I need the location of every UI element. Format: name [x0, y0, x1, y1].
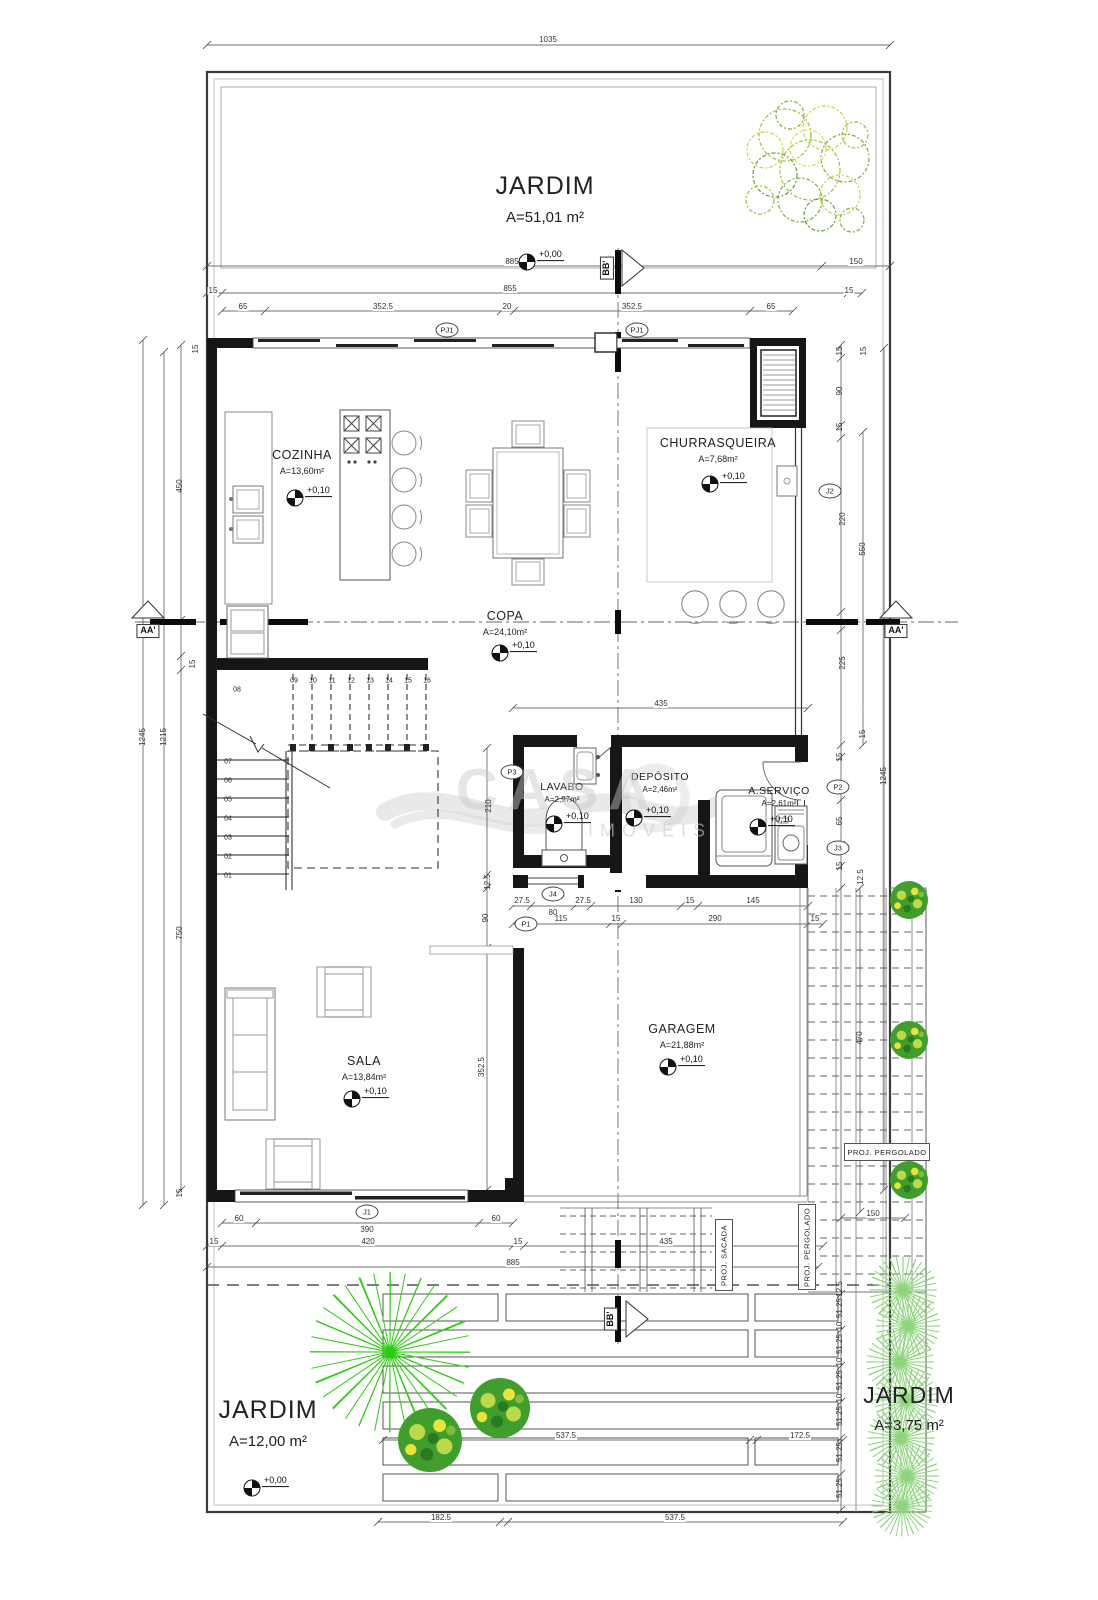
watermark-subtitle: IMÓVEIS: [588, 821, 712, 842]
garden-bottom-right-label: JARDIM A=3,75 m²: [863, 1382, 955, 1434]
level-marker-icon: [344, 1091, 361, 1108]
dimension-label: 90: [482, 913, 490, 924]
dimension-label: 15: [860, 346, 868, 357]
dimension-label: 51.25: [836, 1405, 844, 1427]
dimension-label: 15: [611, 915, 622, 923]
dimension-label: 1245: [880, 766, 888, 786]
garden-name: JARDIM: [218, 1396, 317, 1425]
level-marker-icon: [546, 816, 563, 833]
stair-step-number: 12: [346, 678, 356, 685]
garden-top-label: JARDIM A=51,01 m²: [495, 172, 594, 226]
opening-marker-p1: P1: [515, 917, 538, 932]
dimension-label: 65: [766, 303, 777, 311]
stair-step-number: 14: [384, 678, 394, 685]
dimension-label: 65: [238, 303, 249, 311]
level-marker-icon: [519, 254, 536, 271]
dimension-label: 537.5: [555, 1432, 577, 1440]
room-name: CHURRASQUEIRA: [660, 436, 776, 450]
room-label-copa: COPA A=24,10m²: [483, 609, 527, 637]
room-area: A=7,68m²: [660, 454, 776, 464]
dimension-label: 27.5: [574, 897, 592, 905]
level-value: +0,10: [720, 471, 747, 483]
section-marker: BB': [604, 1307, 618, 1330]
dimension-label: 220: [839, 511, 847, 526]
dimension-label: 145: [745, 897, 760, 905]
stair-step-number: 08: [232, 687, 242, 694]
garden-name: JARDIM: [863, 1382, 955, 1409]
floor-plan: JARDIM A=51,01 m² COZINHA A=13,60m² CHUR…: [0, 0, 1098, 1600]
level-value: +0,10: [768, 814, 795, 826]
stair-step-number: 07: [223, 759, 233, 766]
dimension-label: 885: [504, 258, 519, 266]
dimension-label: 15: [836, 752, 844, 763]
dimension-label: 537.5: [664, 1514, 686, 1522]
dimension-label: 15: [836, 346, 844, 357]
dimension-label: 150: [865, 1210, 880, 1218]
dimension-label: 51.25: [836, 1369, 844, 1391]
projection-text: PROJ. SACADA: [720, 1225, 729, 1286]
stair-step-number: 04: [223, 816, 233, 823]
level-value: +0,00: [537, 249, 564, 261]
stair-step-number: 05: [223, 797, 233, 804]
dimension-label: 15: [513, 1238, 524, 1246]
annotation-layer: JARDIM A=51,01 m² COZINHA A=13,60m² CHUR…: [0, 0, 1098, 1600]
dimension-label: 15: [685, 897, 696, 905]
level-marker-icon: [287, 490, 304, 507]
dimension-label: 51.25: [836, 1441, 844, 1463]
level-marker-icon: [626, 810, 643, 827]
dimension-label: 1035: [538, 36, 558, 44]
level-marker-icon: [244, 1480, 261, 1497]
room-area: A=13,84m²: [342, 1072, 386, 1082]
dimension-label: 172.5: [789, 1432, 811, 1440]
room-label-sala: SALA A=13,84m²: [342, 1054, 386, 1082]
dimension-label: 15: [836, 422, 844, 433]
room-name: A.SERVIÇO: [748, 785, 810, 797]
opening-marker-j4: J4: [542, 887, 565, 902]
dimension-label: 90: [836, 386, 844, 397]
level-value: +0,10: [644, 805, 671, 817]
projection-text: PROJ. PERGOLADO: [803, 1207, 812, 1286]
dimension-label: 12.5: [484, 873, 492, 891]
dimension-label: 750: [176, 925, 184, 940]
opening-marker-pj1: PJ1: [626, 323, 649, 338]
dimension-label: 420: [360, 1238, 375, 1246]
level-value: +0,10: [678, 1054, 705, 1066]
section-marker: AA': [136, 624, 159, 638]
dimension-label: 20: [502, 303, 513, 311]
dimension-label: 65: [836, 816, 844, 827]
dimension-label: 290: [707, 915, 722, 923]
stair-step-number: 06: [223, 778, 233, 785]
dimension-label: 15: [189, 659, 197, 670]
dimension-label: 15: [176, 1188, 184, 1199]
opening-marker-p3: P3: [501, 765, 524, 780]
stair-step-number: 01: [223, 873, 233, 880]
room-label-churrasqueira: CHURRASQUEIRA A=7,68m²: [660, 436, 776, 464]
dimension-label: 450: [176, 478, 184, 493]
projection-label-pergolado-vertical: PROJ. PERGOLADO: [798, 1204, 816, 1290]
level-value: +0,10: [305, 485, 332, 497]
dimension-label: 225: [839, 655, 847, 670]
dimension-label: 10: [836, 1393, 844, 1404]
dimension-label: 130: [628, 897, 643, 905]
garden-name: JARDIM: [495, 172, 594, 201]
dimension-label: 435: [658, 1238, 673, 1246]
room-name: COPA: [483, 609, 527, 623]
dimension-label: 15: [192, 344, 200, 355]
dimension-label: 885: [505, 1259, 520, 1267]
stair-step-number: 15: [403, 678, 413, 685]
dimension-label: 12.5: [836, 1280, 844, 1298]
room-area: A=24,10m²: [483, 627, 527, 637]
opening-marker-pj1: PJ1: [436, 323, 459, 338]
dimension-label: 10: [836, 1357, 844, 1368]
dimension-label: 352.5: [478, 1056, 486, 1078]
dimension-label: 15: [208, 287, 219, 295]
dimension-label: 470: [856, 1030, 864, 1045]
opening-marker-j2: J2: [819, 484, 842, 499]
dimension-label: 15: [810, 915, 821, 923]
stair-step-number: 11: [327, 678, 336, 685]
level-marker-icon: [660, 1059, 677, 1076]
dimension-label: 182.5: [430, 1514, 452, 1522]
dimension-label: 15: [859, 729, 867, 740]
dimension-label: 352.5: [372, 303, 394, 311]
garden-area: A=51,01 m²: [495, 209, 594, 226]
dimension-label: 15: [836, 861, 844, 872]
room-name: GARAGEM: [648, 1022, 715, 1036]
dimension-label: 150: [848, 258, 863, 266]
projection-label-sacada: PROJ. SACADA: [715, 1219, 733, 1291]
dimension-label: 51.25: [836, 1297, 844, 1319]
opening-marker-j3: J3: [827, 841, 850, 856]
garden-area: A=12,00 m²: [218, 1433, 317, 1450]
dimension-label: 12.5: [857, 868, 865, 886]
dimension-label: 60: [234, 1215, 245, 1223]
stair-step-number: 03: [223, 835, 233, 842]
level-value: +0,00: [262, 1475, 289, 1487]
room-name: SALA: [342, 1054, 386, 1068]
room-area: A=13,60m²: [272, 466, 332, 476]
room-area: A=2,61m²: [748, 799, 810, 808]
stair-step-number: 16: [422, 678, 432, 685]
dimension-label: 60: [491, 1215, 502, 1223]
room-name: COZINHA: [272, 448, 332, 462]
level-marker-icon: [702, 476, 719, 493]
dimension-label: 210: [485, 798, 493, 813]
dimension-label: 1215: [160, 727, 168, 747]
stair-step-number: 13: [365, 678, 375, 685]
dimension-label: 51.25: [836, 1333, 844, 1355]
level-value: +0,10: [362, 1086, 389, 1098]
dimension-label: 1245: [139, 727, 147, 747]
level-marker-icon: [750, 819, 767, 836]
dimension-label: 51.25: [836, 1477, 844, 1499]
room-label-servico: A.SERVIÇO A=2,61m²: [748, 785, 810, 808]
dimension-label: 352.5: [621, 303, 643, 311]
opening-marker-p2: P2: [827, 780, 850, 795]
level-value: +0,10: [510, 640, 537, 652]
dimension-label: 435: [653, 700, 668, 708]
level-value: +0,10: [564, 811, 591, 823]
stair-step-number: 10: [308, 678, 318, 685]
section-marker: BB': [600, 256, 614, 279]
level-marker-icon: [492, 645, 509, 662]
dimension-label: 15: [844, 287, 855, 295]
projection-label-pergolado-horizontal: PROJ. PERGOLADO: [844, 1143, 930, 1161]
dimension-label: 855: [502, 285, 517, 293]
dimension-label: 27.5: [513, 897, 531, 905]
garden-bottom-left-label: JARDIM A=12,00 m²: [218, 1396, 317, 1450]
dimension-label: 115: [554, 915, 569, 923]
dimension-label: 550: [859, 541, 867, 556]
dimension-label: 10: [836, 1321, 844, 1332]
room-area: A=21,88m²: [648, 1040, 715, 1050]
room-label-garagem: GARAGEM A=21,88m²: [648, 1022, 715, 1050]
stair-step-number: 09: [289, 678, 299, 685]
projection-text: PROJ. PERGOLADO: [847, 1148, 926, 1157]
dimension-label: 15: [209, 1238, 220, 1246]
stair-step-number: 02: [223, 854, 233, 861]
section-marker: AA': [884, 624, 907, 638]
opening-marker-j1: J1: [356, 1205, 379, 1220]
room-label-cozinha: COZINHA A=13,60m²: [272, 448, 332, 476]
dimension-label: 390: [359, 1226, 374, 1234]
garden-area: A=3,75 m²: [863, 1417, 955, 1434]
